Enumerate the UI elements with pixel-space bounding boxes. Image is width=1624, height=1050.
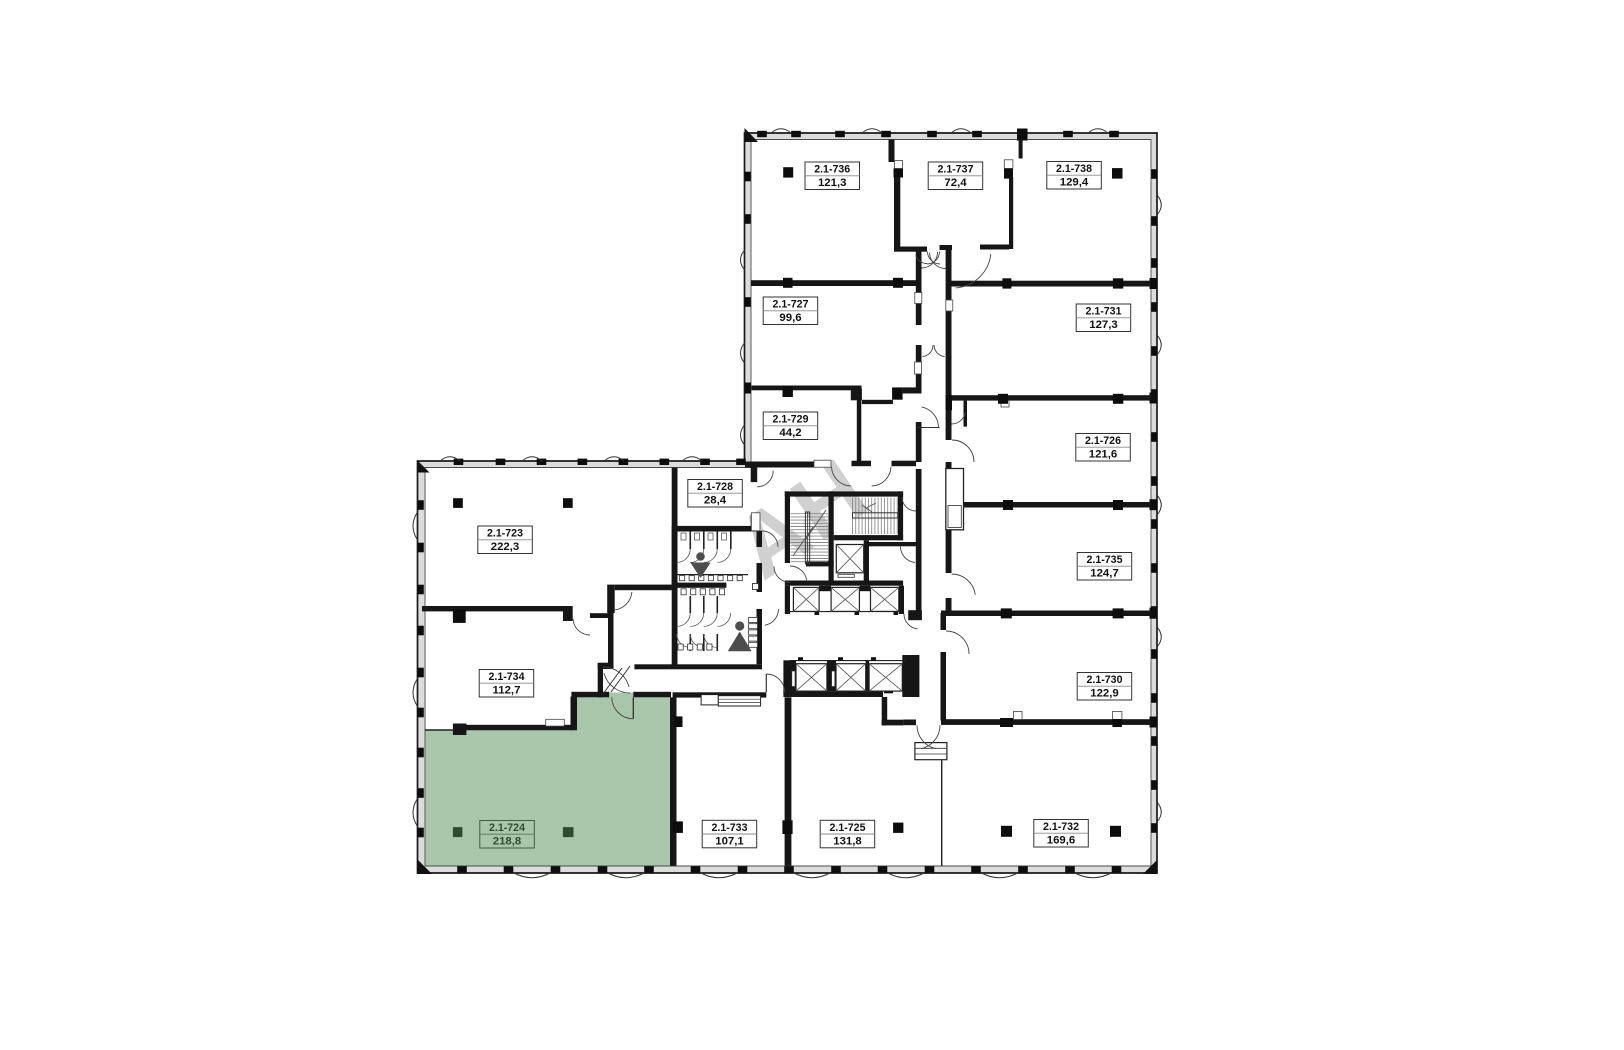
svg-text:2.1-723: 2.1-723 <box>487 528 523 540</box>
svg-text:2.1-734: 2.1-734 <box>489 671 525 683</box>
svg-text:2.1-726: 2.1-726 <box>1085 435 1121 447</box>
svg-text:2.1-731: 2.1-731 <box>1086 306 1122 318</box>
svg-text:44,2: 44,2 <box>779 427 801 439</box>
svg-text:2.1-732: 2.1-732 <box>1043 821 1079 833</box>
svg-text:28,4: 28,4 <box>704 495 727 507</box>
svg-text:129,4: 129,4 <box>1060 177 1089 189</box>
svg-text:2.1-735: 2.1-735 <box>1087 554 1123 566</box>
svg-text:99,6: 99,6 <box>779 312 801 324</box>
svg-text:122,9: 122,9 <box>1090 688 1119 700</box>
svg-text:2.1-728: 2.1-728 <box>697 481 733 493</box>
svg-text:2.1-736: 2.1-736 <box>814 164 850 176</box>
svg-text:2.1-727: 2.1-727 <box>773 299 809 311</box>
svg-text:107,1: 107,1 <box>715 836 744 848</box>
svg-text:2.1-725: 2.1-725 <box>830 822 866 834</box>
svg-text:222,3: 222,3 <box>491 541 520 553</box>
svg-text:2.1-730: 2.1-730 <box>1087 674 1123 686</box>
svg-text:124,7: 124,7 <box>1090 568 1119 580</box>
svg-text:218,8: 218,8 <box>493 836 522 848</box>
svg-text:2.1-724: 2.1-724 <box>489 822 525 834</box>
svg-text:2.1-738: 2.1-738 <box>1056 163 1092 175</box>
svg-text:169,6: 169,6 <box>1047 835 1076 847</box>
svg-text:121,6: 121,6 <box>1089 449 1118 461</box>
svg-text:112,7: 112,7 <box>493 685 521 697</box>
svg-text:2.1-737: 2.1-737 <box>938 164 974 176</box>
svg-text:121,3: 121,3 <box>818 177 847 189</box>
svg-text:131,8: 131,8 <box>833 836 862 848</box>
svg-text:127,3: 127,3 <box>1089 319 1118 331</box>
svg-text:72,4: 72,4 <box>944 177 967 189</box>
svg-text:2.1-733: 2.1-733 <box>712 822 748 834</box>
svg-text:2.1-729: 2.1-729 <box>773 414 809 426</box>
